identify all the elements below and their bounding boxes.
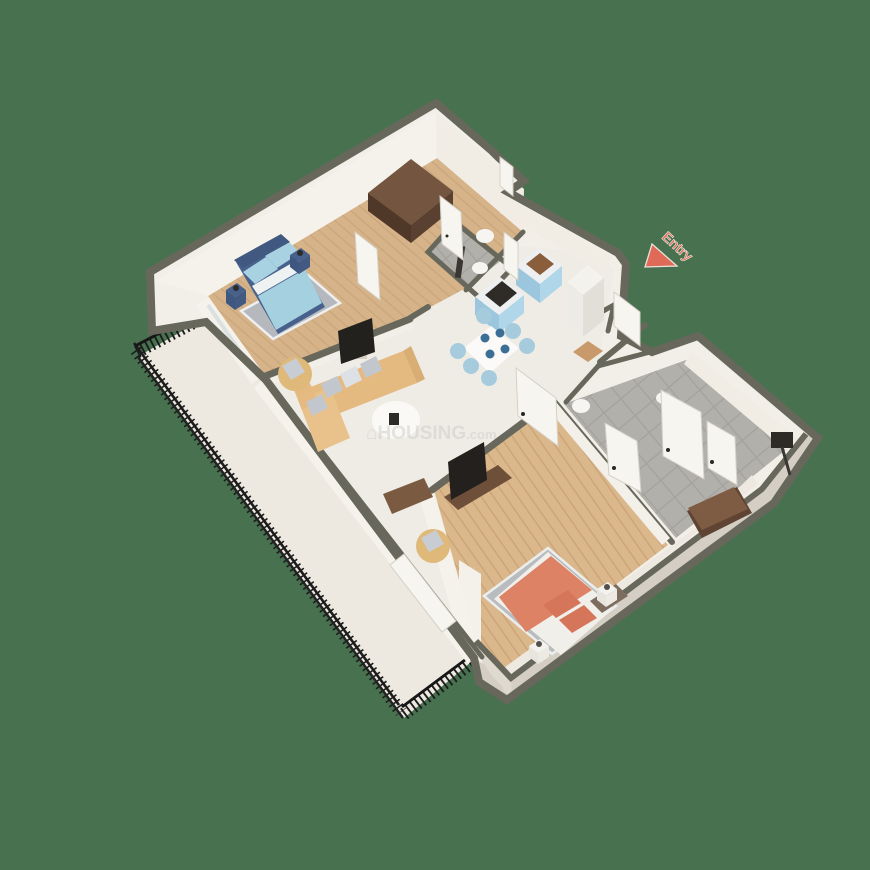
svg-text:⌂HOUSING.com: ⌂HOUSING.com bbox=[366, 423, 497, 444]
